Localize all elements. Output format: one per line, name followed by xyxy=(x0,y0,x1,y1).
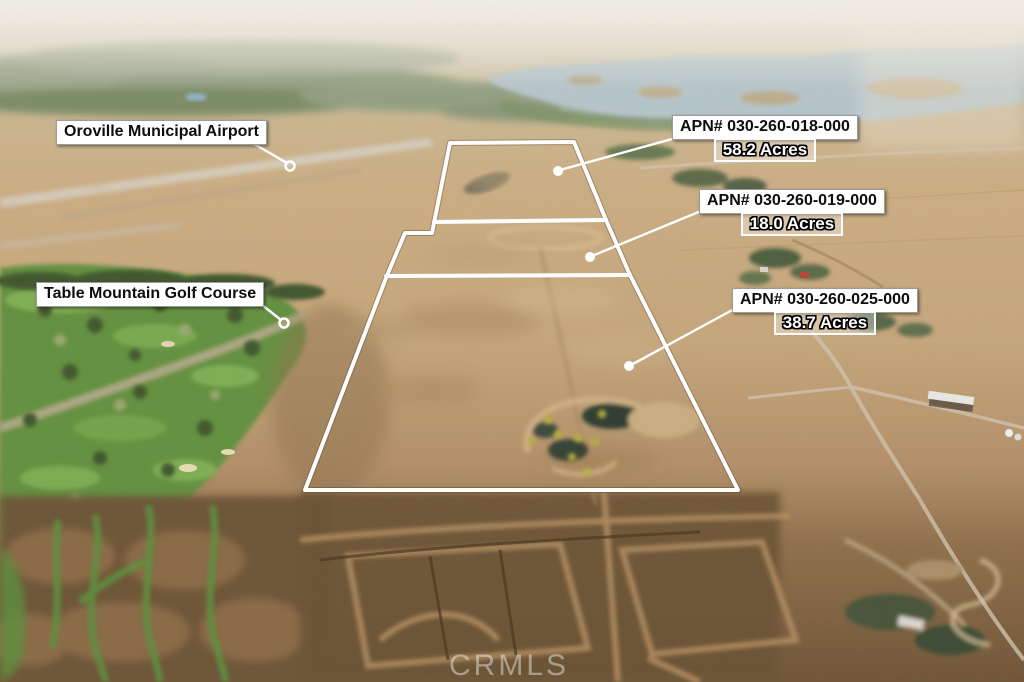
apn-label-018: APN# 030-260-018-000 xyxy=(672,115,858,140)
leader-lines xyxy=(249,139,736,365)
apn-label-025: APN# 030-260-025-000 xyxy=(732,288,918,313)
apn-label-019: APN# 030-260-019-000 xyxy=(699,189,885,214)
parcel-outer-boundary xyxy=(305,142,738,490)
aerial-listing-photo: Oroville Municipal Airport Table Mountai… xyxy=(0,0,1024,682)
parcel-callout-018: APN# 030-260-018-000 58.2 Acres xyxy=(672,115,858,162)
acres-badge-025: 38.7 Acres xyxy=(774,311,876,335)
golf-marker xyxy=(280,319,289,328)
acres-badge-019: 18.0 Acres xyxy=(741,212,843,236)
parcel-025-leader xyxy=(631,308,736,365)
annotation-overlay xyxy=(0,0,1024,682)
airport-label: Oroville Municipal Airport xyxy=(56,120,267,145)
acres-badge-018: 58.2 Acres xyxy=(714,138,816,162)
parcel-019-marker xyxy=(585,252,595,262)
parcel-018-marker xyxy=(553,166,563,176)
parcel-divider-018-019 xyxy=(434,220,606,222)
parcel-callout-025: APN# 030-260-025-000 38.7 Acres xyxy=(732,288,918,335)
parcel-boundary-lines xyxy=(305,142,738,490)
parcel-divider-019-025 xyxy=(386,275,630,276)
parcel-callout-019: APN# 030-260-019-000 18.0 Acres xyxy=(699,189,885,236)
parcel-025-marker xyxy=(624,361,634,371)
crmls-watermark: CRMLS xyxy=(449,649,569,682)
airport-marker xyxy=(286,162,295,171)
parcel-019-leader xyxy=(592,211,701,256)
golf-course-label: Table Mountain Golf Course xyxy=(36,282,264,307)
